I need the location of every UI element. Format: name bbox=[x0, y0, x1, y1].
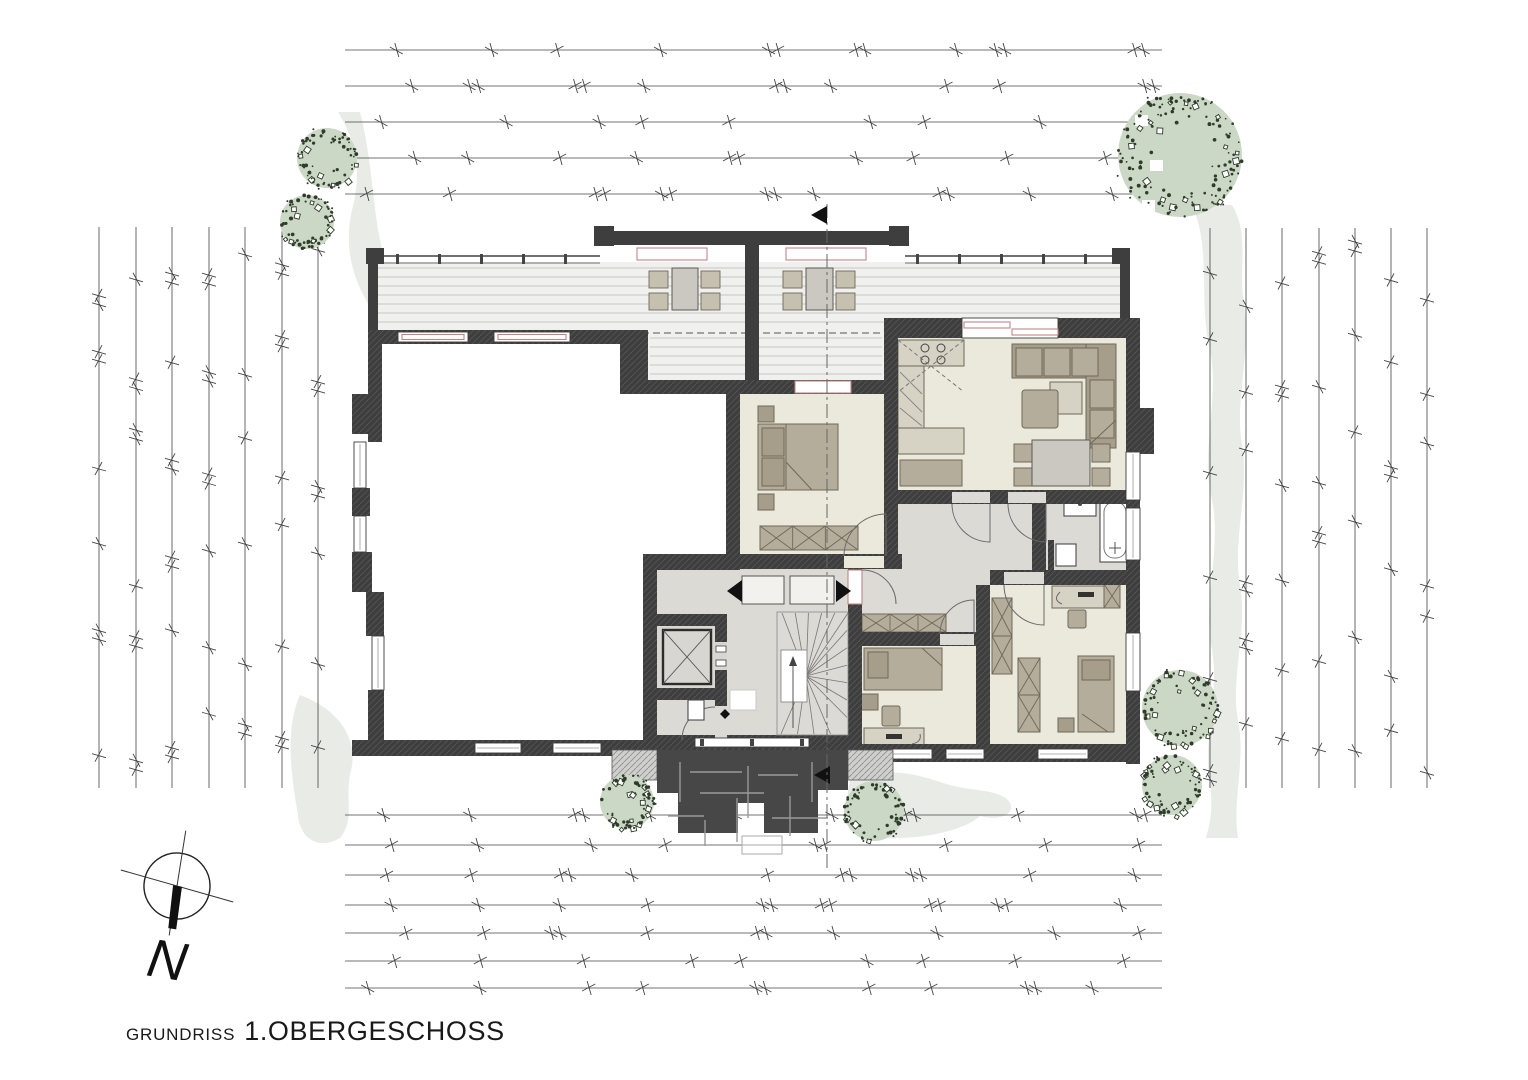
compass: N bbox=[103, 822, 243, 999]
drawing-title: GRUNDRISS 1.OBERGESCHOSS bbox=[126, 1016, 505, 1047]
drawing-title-prefix: GRUNDRISS bbox=[126, 1025, 235, 1045]
toilet bbox=[1056, 544, 1076, 566]
section-arrow-icon bbox=[811, 206, 827, 224]
wc-sink bbox=[688, 700, 704, 720]
floor-plan-drawing: N bbox=[0, 0, 1528, 1080]
desk-chair bbox=[882, 706, 900, 726]
hall-glass-door bbox=[848, 570, 862, 604]
glass-panel bbox=[786, 248, 866, 260]
desk-chair bbox=[1068, 610, 1086, 628]
armchair bbox=[1022, 390, 1058, 428]
glass-panel bbox=[637, 248, 707, 260]
bench bbox=[742, 576, 784, 604]
floor-plan-sheet: N GRUNDRISS 1.OBERGESCHOSS bbox=[0, 0, 1528, 1080]
drawing-title-name: 1.OBERGESCHOSS bbox=[244, 1016, 504, 1047]
compass-north-label: N bbox=[143, 928, 192, 994]
north-arrow-icon bbox=[166, 885, 183, 929]
nightstand bbox=[758, 494, 774, 510]
nightstand bbox=[1058, 718, 1074, 732]
sideboard bbox=[900, 460, 962, 486]
balcony-divider-wall bbox=[745, 235, 759, 381]
balcony-door bbox=[795, 381, 851, 393]
nightstand bbox=[758, 406, 774, 422]
building bbox=[352, 226, 1154, 764]
